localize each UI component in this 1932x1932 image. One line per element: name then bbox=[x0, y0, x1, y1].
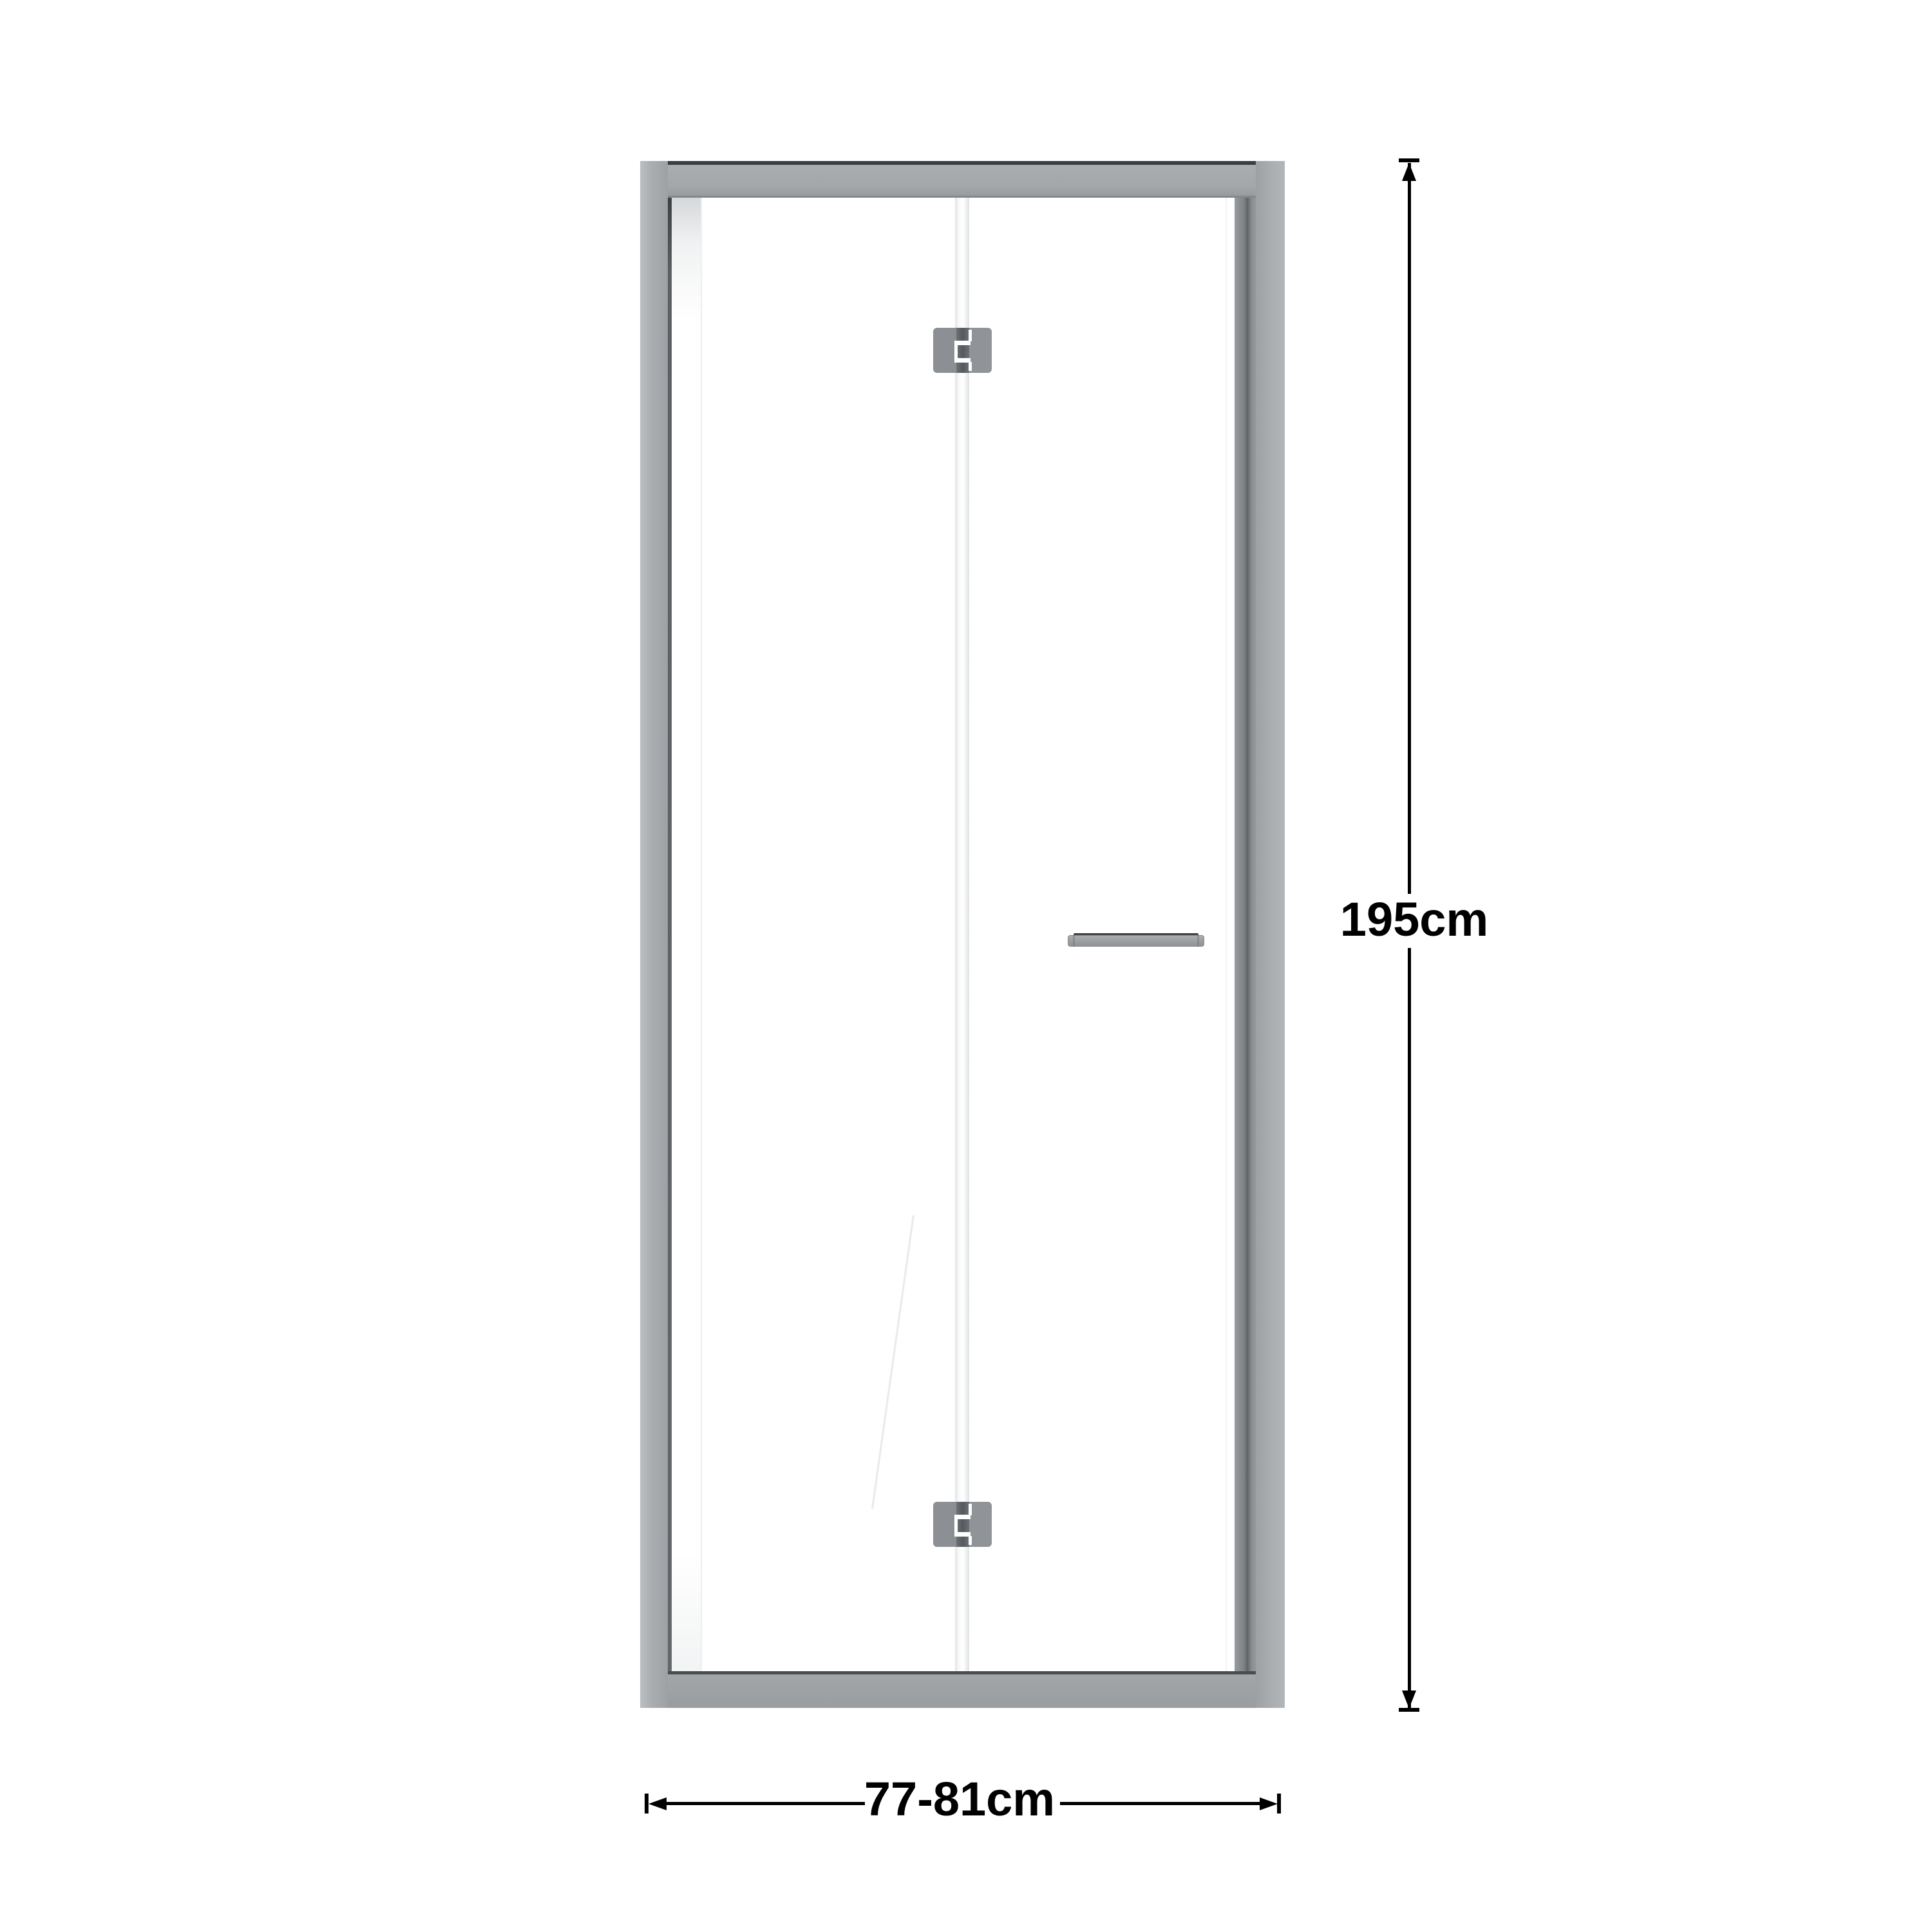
bifold-fold-line bbox=[955, 198, 969, 1671]
glass-left-edge-strip bbox=[672, 198, 702, 1671]
height-dim-arrow-down-icon bbox=[1402, 1690, 1416, 1709]
hinge-leaf-notch bbox=[954, 345, 958, 359]
handle-bar bbox=[1068, 935, 1204, 947]
hinge-knuckle bbox=[956, 1502, 969, 1547]
hinge-leaf-notch bbox=[969, 1504, 972, 1515]
width-dim-arrow-left-icon bbox=[649, 1797, 667, 1810]
hinge-leaf-notch bbox=[969, 330, 972, 341]
height-dim-top-tick bbox=[1399, 158, 1419, 162]
frame-right-post bbox=[1256, 161, 1285, 1708]
shower-door-diagram: 195cm 77-81cm bbox=[0, 0, 1932, 1932]
width-dim-line-left bbox=[665, 1802, 865, 1805]
hinge-leaf-right bbox=[969, 328, 992, 373]
height-dim-bottom-tick bbox=[1399, 1708, 1419, 1712]
height-dim-label: 195cm bbox=[1340, 893, 1488, 947]
door-handle bbox=[1068, 933, 1204, 947]
hinge-leaf-notch bbox=[969, 362, 972, 371]
shower-door bbox=[640, 161, 1285, 1708]
frame-bottom-rail bbox=[668, 1671, 1256, 1708]
hinge-knuckle bbox=[956, 328, 969, 373]
top-hinge bbox=[933, 328, 992, 373]
width-dim-arrow-right-icon bbox=[1260, 1797, 1278, 1810]
height-dim-line-upper bbox=[1408, 163, 1411, 894]
hinge-leaf-right bbox=[969, 1502, 992, 1547]
right-door-channel bbox=[1235, 198, 1256, 1671]
width-dim-line-right bbox=[1060, 1802, 1260, 1805]
hinge-leaf-left bbox=[933, 328, 956, 373]
glass-right-edge-strip bbox=[1226, 198, 1235, 1671]
hinge-leaf-left bbox=[933, 1502, 956, 1547]
frame-top-rail bbox=[668, 161, 1256, 198]
hinge-leaf-notch bbox=[969, 1536, 972, 1545]
height-dim-line-lower bbox=[1408, 948, 1411, 1709]
glass-reflection bbox=[871, 1215, 914, 1509]
width-dim-right-tick bbox=[1277, 1794, 1281, 1814]
frame-left-post bbox=[640, 161, 668, 1708]
handle-end-seam bbox=[1197, 935, 1199, 947]
width-dim-label: 77-81cm bbox=[864, 1772, 1055, 1826]
handle-end-seam bbox=[1073, 935, 1075, 947]
hinge-leaf-notch bbox=[954, 1519, 958, 1533]
bottom-hinge bbox=[933, 1502, 992, 1547]
